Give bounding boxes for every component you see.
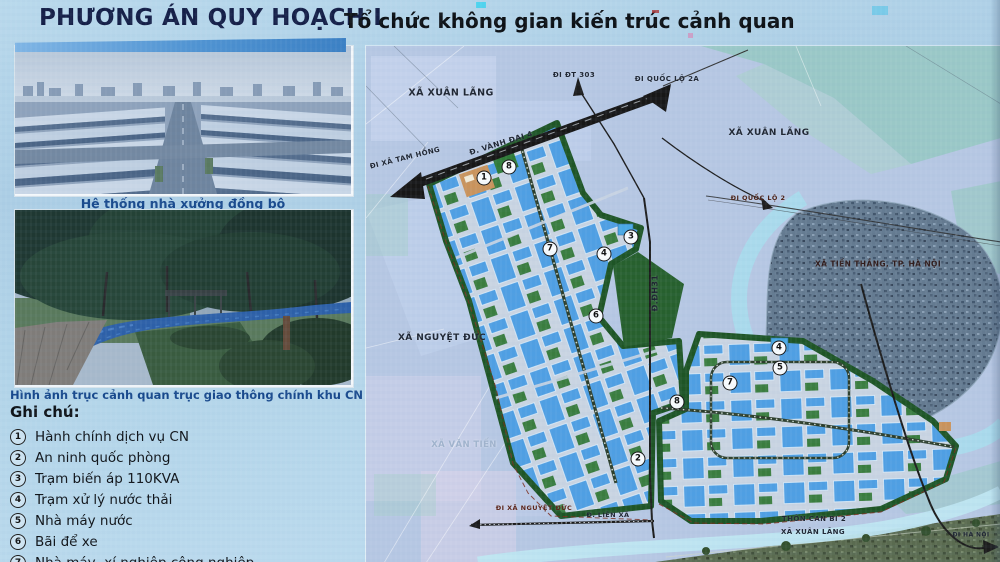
legend-item-label: Trạm xử lý nước thải — [35, 492, 172, 508]
photo-industrial-aerial — [14, 45, 354, 197]
legend-number-badge: 5 — [10, 513, 26, 529]
screen-artifact — [476, 2, 486, 8]
title-underline-bar — [15, 38, 346, 52]
screen-artifact — [688, 33, 693, 38]
map-marker: 7 — [543, 242, 558, 257]
map-label-road: ĐI QUỐC LỘ 2A — [635, 75, 699, 83]
page-title: PHƯƠNG ÁN QUY HOẠCH I — [39, 5, 382, 31]
map-marker: 8 — [670, 395, 685, 410]
legend-item: 2 An ninh quốc phòng — [10, 447, 360, 468]
map-marker: 5 — [773, 361, 788, 376]
photo-industrial-aerial-art — [15, 46, 351, 194]
photo-landscape-art — [15, 210, 351, 385]
legend-item: 3 Trạm biến áp 110KVA — [10, 468, 360, 489]
map-label-road: Đ.ĐH31 — [651, 275, 660, 312]
map-marker: 4 — [772, 341, 787, 356]
map-label-area: THÔN CAN BI 2 — [782, 515, 846, 523]
map-label-area: XÃ TIẾN THẮNG, TP. HÀ NỘI — [815, 260, 941, 269]
legend-title: Ghi chú: — [10, 403, 360, 421]
legend-item-label: Trạm biến áp 110KVA — [35, 471, 179, 487]
legend-number-badge: 4 — [10, 492, 26, 508]
legend-item-label: Nhà máy nước — [35, 513, 133, 529]
map-label-area: XÃ XUÂN LÃNG — [781, 528, 845, 536]
legend-item-label: An ninh quốc phòng — [35, 450, 170, 466]
legend: Ghi chú: 1 Hành chính dịch vụ CN 2 An ni… — [10, 403, 360, 562]
legend-number-badge: 7 — [10, 555, 26, 562]
map-label-area: XÃ XUÂN LÃNG — [408, 88, 493, 99]
master-plan-map: XÃ XUÂN LÃNG ĐI ĐT 303 ĐI QUỐC LỘ 2A Đ. … — [365, 45, 1000, 562]
slide: PHƯƠNG ÁN QUY HOẠCH I Tổ chức không gian… — [0, 0, 1000, 562]
legend-item-label: Nhà máy, xí nghiệp công nghiệp — [35, 555, 254, 562]
map-label-road: ĐI QUỐC LỘ 2 — [731, 194, 786, 202]
map-label-road: ĐI ĐT 303 — [553, 71, 595, 79]
map-label-area: XÃ XUÂN LÃNG — [728, 128, 809, 138]
page-subtitle: Tổ chức không gian kiến trúc cảnh quan — [344, 9, 795, 33]
map-label-area: XÃ VĂN TIẾN — [431, 440, 497, 450]
map-label-area: XÃ NGUYỆT ĐỨC — [398, 333, 486, 343]
legend-item: 1 Hành chính dịch vụ CN — [10, 426, 360, 447]
legend-item-label: Bãi để xe — [35, 534, 98, 550]
legend-item: 4 Trạm xử lý nước thải — [10, 489, 360, 510]
legend-item: 5 Nhà máy nước — [10, 510, 360, 531]
legend-number-badge: 1 — [10, 429, 26, 445]
photo-landscape-path — [14, 209, 354, 388]
map-label-road: ĐI XÃ NGUYỆT ĐỨC — [496, 504, 572, 512]
legend-item-label: Hành chính dịch vụ CN — [35, 429, 189, 445]
map-marker: 1 — [477, 171, 492, 186]
map-label-road: Đ. LIÊN XÃ — [587, 511, 630, 519]
map-marker: 7 — [723, 376, 738, 391]
legend-item: 6 Bãi để xe — [10, 531, 360, 552]
master-plan-map-art — [366, 46, 1000, 562]
map-marker: 4 — [597, 247, 612, 262]
legend-number-badge: 2 — [10, 450, 26, 466]
photo2-caption: Hình ảnh trục cảnh quan trục giao thông … — [10, 388, 356, 402]
map-marker: 3 — [624, 230, 639, 245]
map-marker: 6 — [589, 309, 604, 324]
legend-number-badge: 3 — [10, 471, 26, 487]
legend-number-badge: 6 — [10, 534, 26, 550]
screen-artifact — [872, 6, 888, 15]
legend-item: 7 Nhà máy, xí nghiệp công nghiệp — [10, 552, 360, 562]
map-marker: 2 — [631, 452, 646, 467]
map-marker: 8 — [502, 160, 517, 175]
map-label-road: ĐI HÀ NỘI — [952, 532, 989, 539]
